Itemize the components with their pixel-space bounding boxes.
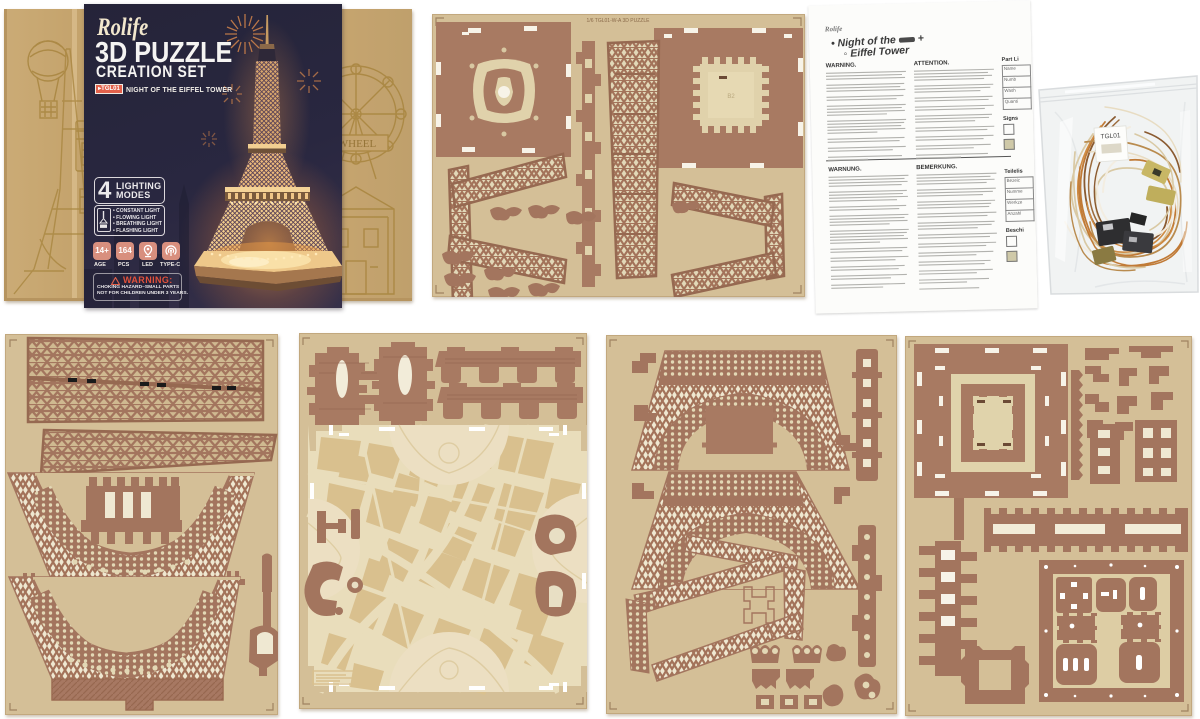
- svg-text:B2: B2: [727, 94, 735, 100]
- svg-text:WHEEL: WHEEL: [338, 138, 377, 150]
- svg-text:1/6 TGL01-W-A 3D PUZZLE: 1/6 TGL01-W-A 3D PUZZLE: [587, 18, 651, 24]
- svg-text:TGL01: TGL01: [1100, 132, 1121, 140]
